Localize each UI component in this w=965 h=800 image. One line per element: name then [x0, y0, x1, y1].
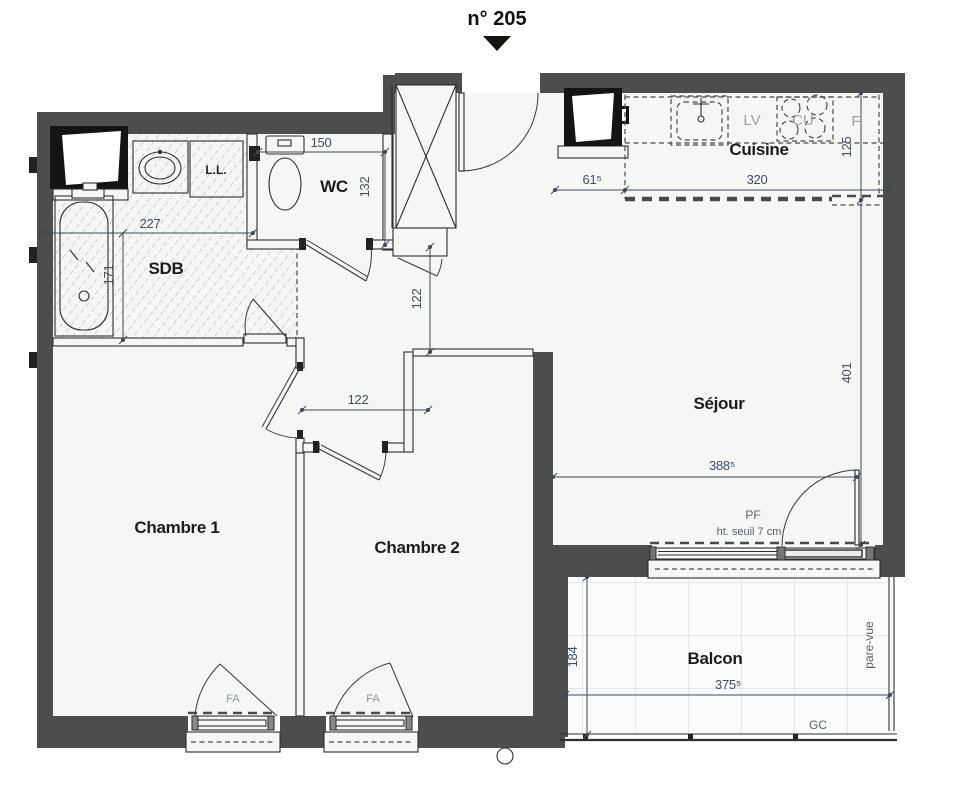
- railing-post: [793, 734, 798, 739]
- room-label-cuisine: Cuisine: [729, 140, 788, 159]
- floor-plan-svg: n° 205 SDB WC Cuisine Séjour Chambre 1 C…: [0, 0, 965, 800]
- pf-threshold-note: ht. seuil 7 cm: [717, 526, 782, 538]
- washing-machine-label: L.L.: [205, 163, 226, 177]
- dim-sdb-width: 227: [140, 216, 161, 231]
- dim-sdb-depth: 171: [101, 265, 116, 286]
- floor-areas: [53, 93, 888, 734]
- toilet-button: [278, 140, 291, 146]
- wall-right: [883, 93, 905, 577]
- pare-vue-screen: [889, 577, 894, 731]
- dim-kitchen-depth: 125: [839, 137, 854, 158]
- door-jamb-mark: [382, 441, 388, 453]
- wall-joint-tab: [29, 247, 37, 263]
- pf-mullion: [777, 547, 785, 560]
- room-label-balcon: Balcon: [688, 649, 743, 668]
- dim-wc-width: 150: [311, 135, 332, 150]
- door-jamb-mark: [366, 238, 373, 250]
- cooktop-label: CU: [792, 112, 814, 129]
- technical-shaft: [392, 85, 456, 276]
- gc-label: GC: [809, 718, 827, 732]
- window-end-block: [406, 716, 412, 730]
- wall-joint-tab: [29, 157, 37, 173]
- window-end-block: [330, 716, 336, 730]
- wall-step: [383, 75, 395, 134]
- room-label-sdb: SDB: [149, 259, 184, 278]
- dim-kitchen-offset: 61⁵: [583, 172, 602, 187]
- chambre1-window-frame: [192, 716, 274, 730]
- dim-hall-width: 122: [348, 392, 369, 407]
- fridge-label: F: [851, 113, 860, 130]
- window-end-block: [268, 716, 274, 730]
- wall-sdb-bottom: [53, 338, 243, 346]
- toilet-bowl: [269, 158, 301, 210]
- threshold-marker-circle: [497, 748, 513, 764]
- room-label-chambre2: Chambre 2: [374, 538, 459, 557]
- floor-plan-page: n° 205 SDB WC Cuisine Séjour Chambre 1 C…: [0, 0, 965, 800]
- room-label-chambre1: Chambre 1: [134, 518, 219, 537]
- pf-door-leaf: [855, 470, 859, 545]
- room-label-wc: WC: [320, 177, 348, 196]
- pf-label: PF: [745, 508, 760, 522]
- bathtub-faucet-knob: [83, 183, 97, 190]
- sdb-window-pane: [62, 131, 121, 185]
- dim-kitchen-width: 320: [747, 172, 768, 187]
- sdb-door-threshold: [244, 334, 286, 343]
- wall-chambre1-chambre2: [296, 453, 304, 716]
- wall-wc-bottom-left: [247, 240, 305, 249]
- dim-sejour-length: 401: [839, 363, 854, 384]
- railing-post: [688, 734, 693, 739]
- unit-pointer-triangle-icon: [483, 36, 511, 51]
- dim-hall-depth: 122: [409, 289, 424, 310]
- entry-door-leaf: [459, 93, 464, 171]
- chambre2-window-frame: [330, 716, 412, 730]
- door-jamb-mark: [297, 362, 303, 371]
- unit-number-label: n° 205: [467, 8, 526, 30]
- door-jamb-mark: [299, 238, 306, 250]
- room-label-sejour: Séjour: [693, 394, 745, 413]
- dim-balcony-depth: 184: [565, 647, 580, 668]
- wall-sejour-bottom-left: [553, 545, 652, 577]
- pf-door-panel: [784, 550, 862, 557]
- pf-mullion: [866, 547, 874, 560]
- kitchen-window-pane: [572, 93, 614, 142]
- wall-bottom: [37, 716, 565, 748]
- wall-chambre2-sejour: [533, 352, 553, 716]
- fa-window-label-2: FA: [366, 693, 380, 705]
- dim-wc-depth: 132: [357, 177, 372, 198]
- pare-vue-label: pare-vue: [862, 621, 876, 669]
- dim-balcony-width: 375⁵: [715, 677, 741, 692]
- pf-mullion: [650, 547, 656, 560]
- kitchen-unit-base: [558, 146, 628, 158]
- wall-left: [37, 134, 53, 748]
- window-end-block: [192, 716, 198, 730]
- dishwasher-label: LV: [743, 112, 760, 129]
- shaft-lower-box: [393, 228, 447, 256]
- fa-window-label-1: FA: [226, 693, 240, 705]
- washbasin-faucet: [158, 150, 162, 154]
- wall-chambre2-notch-vertical: [404, 352, 413, 452]
- door-jamb-mark: [313, 441, 319, 453]
- dim-sejour-width: 388⁵: [709, 458, 735, 473]
- wall-joint-tab: [29, 352, 37, 368]
